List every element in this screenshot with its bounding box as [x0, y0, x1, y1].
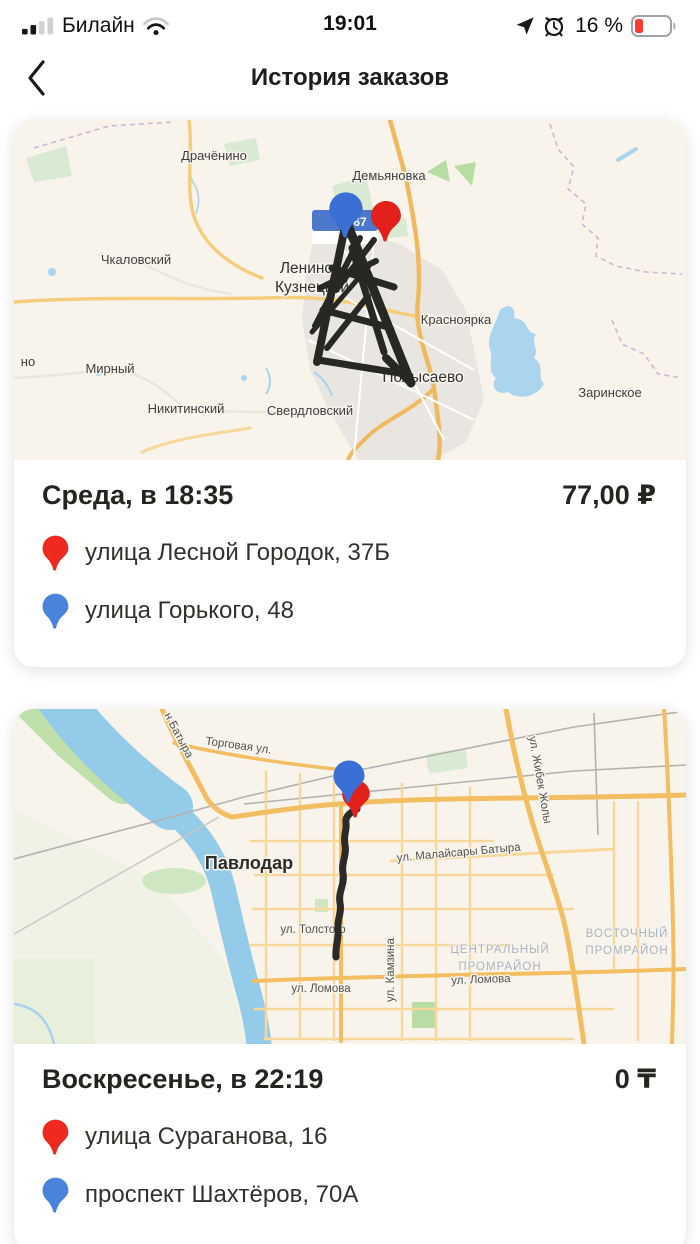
- order-card-2[interactable]: н Батыра Торговая ул. Павлодар ул. Жибек…: [14, 709, 686, 1244]
- order-date: Среда, в 18:35: [42, 480, 233, 511]
- origin-pin-icon: [42, 593, 69, 629]
- page-title: История заказов: [251, 64, 449, 92]
- alarm-icon: [543, 15, 565, 37]
- order-map-2[interactable]: н Батыра Торговая ул. Павлодар ул. Жибек…: [14, 709, 686, 1044]
- svg-text:ул. Ломова: ул. Ломова: [451, 973, 511, 987]
- cellular-signal-icon: [22, 17, 54, 35]
- svg-text:ПРОМРАЙОН: ПРОМРАЙОН: [458, 960, 541, 973]
- destination-row: улица Сураганова, 16: [42, 1115, 656, 1159]
- origin-row: проспект Шахтёров, 70А: [42, 1173, 656, 1217]
- svg-text:Павлодар: Павлодар: [205, 853, 293, 873]
- svg-text:Красноярка: Красноярка: [421, 312, 492, 327]
- nav-bar: История заказов: [0, 46, 700, 110]
- destination-row: улица Лесной Городок, 37Б: [42, 531, 656, 575]
- status-bar: Билайн 19:01 16 %: [0, 0, 700, 46]
- battery-percent-label: 16 %: [575, 14, 623, 38]
- svg-text:ЦЕНТРАЛЬНЫЙ: ЦЕНТРАЛЬНЫЙ: [450, 943, 549, 956]
- destination-address: улица Сураганова, 16: [85, 1123, 327, 1151]
- location-services-icon: [515, 16, 535, 36]
- carrier-label: Билайн: [62, 14, 135, 38]
- svg-text:Чкаловский: Чкаловский: [101, 252, 171, 267]
- chevron-left-icon: [26, 59, 46, 97]
- order-date: Воскресенье, в 22:19: [42, 1064, 323, 1095]
- origin-pin-icon: [42, 1177, 69, 1213]
- order-card-1[interactable]: Драчёнино Демьяновка Чкаловский Ленинск-…: [14, 120, 686, 667]
- svg-text:Свердловский: Свердловский: [267, 403, 353, 418]
- svg-text:но: но: [21, 354, 35, 369]
- order-map-1[interactable]: Драчёнино Демьяновка Чкаловский Ленинск-…: [14, 120, 686, 460]
- svg-text:ПРОМРАЙОН: ПРОМРАЙОН: [585, 944, 668, 957]
- origin-address: улица Горького, 48: [85, 597, 294, 625]
- svg-text:ВОСТОЧНЫЙ: ВОСТОЧНЫЙ: [586, 927, 669, 940]
- order-details-1: Среда, в 18:35 77,00 ₽ улица Лесной Горо…: [14, 460, 686, 667]
- destination-address: улица Лесной Городок, 37Б: [85, 539, 390, 567]
- screen: Билайн 19:01 16 %: [0, 0, 700, 1244]
- order-price: 0 ₸: [615, 1064, 656, 1095]
- svg-text:Заринское: Заринское: [578, 385, 642, 400]
- svg-text:ул. Ломова: ул. Ломова: [291, 983, 351, 995]
- order-details-2: Воскресенье, в 22:19 0 ₸ улица Сураганов…: [14, 1044, 686, 1244]
- origin-row: улица Горького, 48: [42, 589, 656, 633]
- back-button[interactable]: [14, 54, 58, 102]
- destination-pin-icon: [42, 535, 69, 571]
- order-history-list: Драчёнино Демьяновка Чкаловский Ленинск-…: [0, 110, 700, 1244]
- svg-text:Демьяновка: Демьяновка: [352, 168, 426, 183]
- svg-text:Мирный: Мирный: [85, 361, 134, 376]
- destination-pin-icon: [42, 1119, 69, 1155]
- svg-text:ул. Камзина: ул. Камзина: [385, 937, 397, 1002]
- wifi-icon: [143, 17, 169, 36]
- svg-text:Никитинский: Никитинский: [148, 401, 225, 416]
- battery-icon: [631, 14, 678, 38]
- origin-address: проспект Шахтёров, 70А: [85, 1181, 358, 1209]
- svg-text:Драчёнино: Драчёнино: [181, 148, 247, 163]
- order-price: 77,00 ₽: [562, 480, 656, 511]
